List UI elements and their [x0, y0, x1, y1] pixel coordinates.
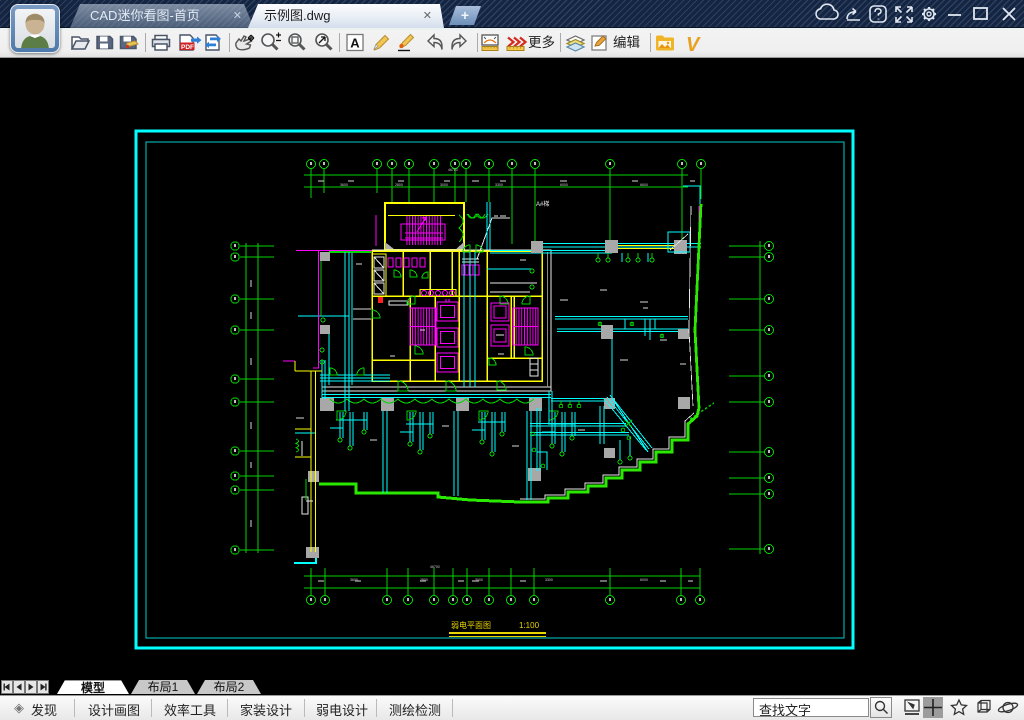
- svg-text:V: V: [686, 34, 701, 56]
- svg-text:2800: 2800: [395, 183, 403, 187]
- svg-text:6000: 6000: [640, 578, 648, 582]
- svg-text:3300: 3300: [545, 578, 553, 582]
- svg-text:弱电平面图: 弱电平面图: [451, 620, 491, 630]
- svg-text:46700: 46700: [430, 565, 440, 569]
- svg-text:3300: 3300: [495, 183, 503, 187]
- svg-text:3000: 3000: [440, 183, 448, 187]
- svg-text:PDF: PDF: [181, 44, 194, 51]
- svg-text:编辑: 编辑: [613, 35, 640, 50]
- svg-text:A#梯: A#梯: [536, 200, 549, 208]
- svg-text:6600: 6600: [640, 183, 648, 187]
- svg-text:3600: 3600: [340, 183, 348, 187]
- svg-text:46700: 46700: [448, 168, 458, 172]
- svg-text:A: A: [350, 36, 360, 51]
- svg-text:更多: 更多: [528, 34, 555, 50]
- svg-text:6000: 6000: [560, 183, 568, 187]
- svg-text:1:100: 1:100: [519, 621, 540, 630]
